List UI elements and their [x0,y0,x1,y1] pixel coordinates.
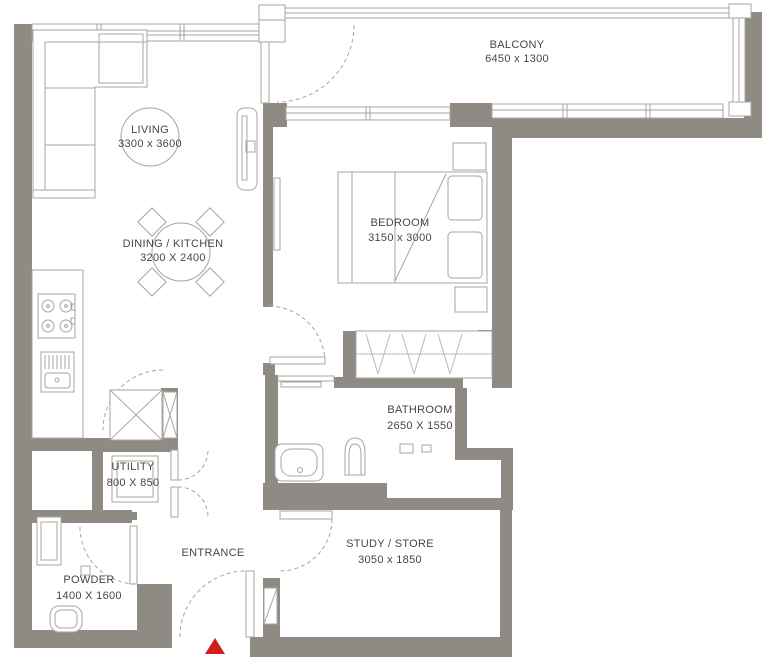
balcony-post-left [259,5,285,21]
powder-toilet [50,606,82,632]
balcony-door-swing [277,25,354,102]
bedroom-door-swing [268,306,325,363]
wall-study-top [263,498,512,510]
wall-study-right [500,510,512,657]
stove [38,294,75,338]
living-dims: 3300 x 3600 [118,138,182,150]
balcony-dims: 6450 x 1300 [485,53,549,65]
kitchen-counter [32,270,83,438]
balcony-label: BALCONY [490,39,545,51]
living-label: LIVING [131,124,169,136]
room-study-store: STUDY / STORE 3050 x 1850 [264,511,434,624]
wall-utility-left [92,450,103,512]
entrance-label: ENTRANCE [182,547,245,559]
toilet [345,438,365,475]
room-powder: POWDER 1400 X 1600 [37,517,137,632]
wall-bedroom-right [492,118,512,344]
study-door-leaf [280,511,332,519]
dining-dims: 3200 X 2400 [140,252,206,264]
room-bathroom: BATHROOM 2650 X 1550 [275,376,453,481]
pillow [448,176,482,220]
entrance-door-swing [180,571,246,637]
wall-wardrobe-left-pier [343,331,356,382]
wall-wardrobe-bottom [334,377,463,388]
service-shaft [110,390,162,440]
wall-pier-bedroom-window [450,103,492,127]
sofa [33,30,147,198]
room-utility: UTILITY 800 X 850 [107,390,208,517]
wardrobe [356,331,492,378]
utility-dims: 800 X 850 [107,477,160,489]
balcony-post-top-right [729,4,751,18]
bathroom-sink [400,444,431,453]
wall-balcony-rear [492,118,760,138]
balcony-rear-window-band [492,104,723,118]
bathroom-label: BATHROOM [387,404,452,416]
study-label: STUDY / STORE [346,538,434,550]
room-entrance: ENTRANCE [180,547,254,654]
living-rug [121,108,179,166]
powder-vanity [37,517,61,565]
wall-left-exterior [14,24,32,648]
wall-kitchen-bottom [15,438,103,451]
floor-plan: LIVING 3300 x 3600 [0,0,768,659]
entrance-door-leaf [246,571,254,637]
bathtub [275,444,323,481]
utility-label: UTILITY [111,461,154,473]
wall-balcony-right [744,12,762,138]
entrance-marker-icon [205,638,225,654]
wall-living-bedroom-partition [263,127,273,307]
living-balcony-fixed-glass [261,42,269,103]
bedroom-door-leaf [270,357,325,364]
wall-bottom [250,637,512,657]
powder-label: POWDER [63,574,114,586]
wall-bathroom-right [455,388,467,450]
study-dims: 3050 x 1850 [358,554,422,566]
powder-dims: 1400 X 1600 [56,590,122,602]
wall-wardrobe-right [492,330,512,388]
study-wall-niche [264,588,277,624]
balcony-door-post [259,20,285,42]
wall-pier-bedroom-door [263,363,275,375]
bedroom-tv-panel [274,178,280,250]
study-door-swing [280,519,332,571]
powder-door-leaf [130,526,137,584]
bathroom-dims: 2650 X 1550 [387,420,453,432]
wall-pier-balcony-bedroom [263,103,287,127]
duct-shaft [163,392,177,438]
floor-plan-svg: LIVING 3300 x 3600 [0,0,768,659]
bedroom-label: BEDROOM [371,217,430,229]
bedroom-dims: 3150 x 3000 [368,232,432,244]
wall-powder-right [137,584,172,634]
bathroom-sliding-door [278,376,334,387]
tv-unit [237,108,257,190]
utility-double-door [171,450,208,517]
nightstand [455,287,487,312]
room-balcony: BALCONY 6450 x 1300 [485,39,549,65]
pillow [448,232,482,278]
nightstand [453,143,486,170]
wall-utility-bottom [103,512,137,520]
kitchen-sink [41,352,74,392]
room-bedroom: BEDROOM 3150 x 3000 [268,143,492,378]
dining-label: DINING / KITCHEN [123,238,224,250]
balcony-post-bottom-right [729,102,751,116]
